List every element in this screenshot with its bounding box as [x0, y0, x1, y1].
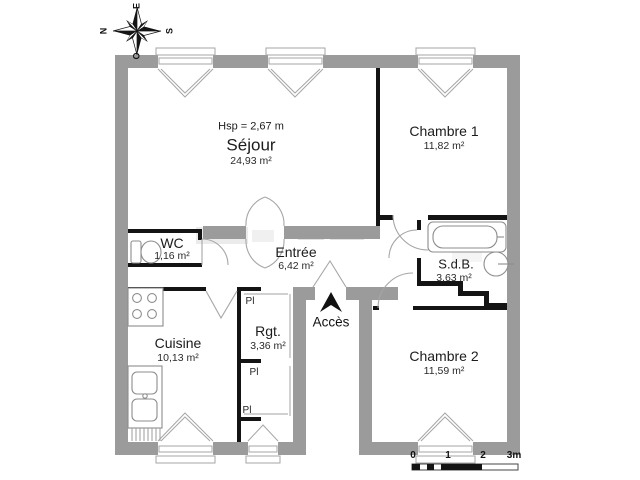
compass-east-label: E	[133, 3, 142, 9]
room-name-chambre1: Chambre 1	[409, 124, 478, 138]
floorplan-drawing	[0, 0, 640, 480]
room-name-wc: WC	[160, 236, 183, 250]
scale-tick-1: 1	[445, 451, 451, 461]
compass-west-label: O	[133, 52, 142, 59]
compass-south-label: S	[166, 28, 175, 34]
scale-tick-3: 3m	[507, 451, 521, 461]
closet-label-1: Pl	[246, 297, 255, 307]
access-arrow-icon	[320, 292, 342, 312]
closet-fronts	[244, 294, 290, 416]
closet-label-2: Pl	[250, 368, 259, 378]
room-area-entree: 6,42 m²	[278, 261, 314, 272]
room-area-sdb: 3,63 m²	[436, 273, 472, 284]
compass-rose-icon	[113, 7, 161, 55]
scale-tick-0: 0	[410, 451, 416, 461]
floorplan: Hsp = 2,67 m Séjour 24,93 m² Chambre 1 1…	[0, 0, 640, 480]
room-area-rgt: 3,36 m²	[250, 341, 286, 352]
access-label: Accès	[313, 315, 350, 329]
kitchen-counter-hatch	[132, 428, 160, 441]
room-name-entree: Entrée	[275, 245, 316, 259]
room-area-wc: 1,16 m²	[154, 251, 190, 262]
stove-fixture	[128, 288, 163, 326]
room-name-sdb: S.d.B.	[438, 258, 473, 271]
room-name-rgt: Rgt.	[255, 324, 281, 338]
room-area-sejour: 24,93 m²	[230, 156, 271, 167]
compass-north-label: N	[100, 28, 109, 35]
scale-tick-2: 2	[480, 451, 486, 461]
room-name-sejour: Séjour	[226, 137, 275, 154]
ceiling-height-note: Hsp = 2,67 m	[218, 122, 284, 133]
room-area-chambre2: 11,59 m²	[424, 366, 465, 377]
room-name-cuisine: Cuisine	[155, 336, 202, 350]
room-area-cuisine: 10,13 m²	[157, 353, 198, 364]
closet-label-3: Pl	[243, 406, 252, 416]
scale-bar	[412, 464, 518, 470]
room-name-chambre2: Chambre 2	[409, 349, 478, 363]
bathtub-fixture	[428, 222, 506, 252]
kitchen-sink-fixture	[128, 366, 162, 428]
room-area-chambre1: 11,82 m²	[424, 141, 465, 152]
